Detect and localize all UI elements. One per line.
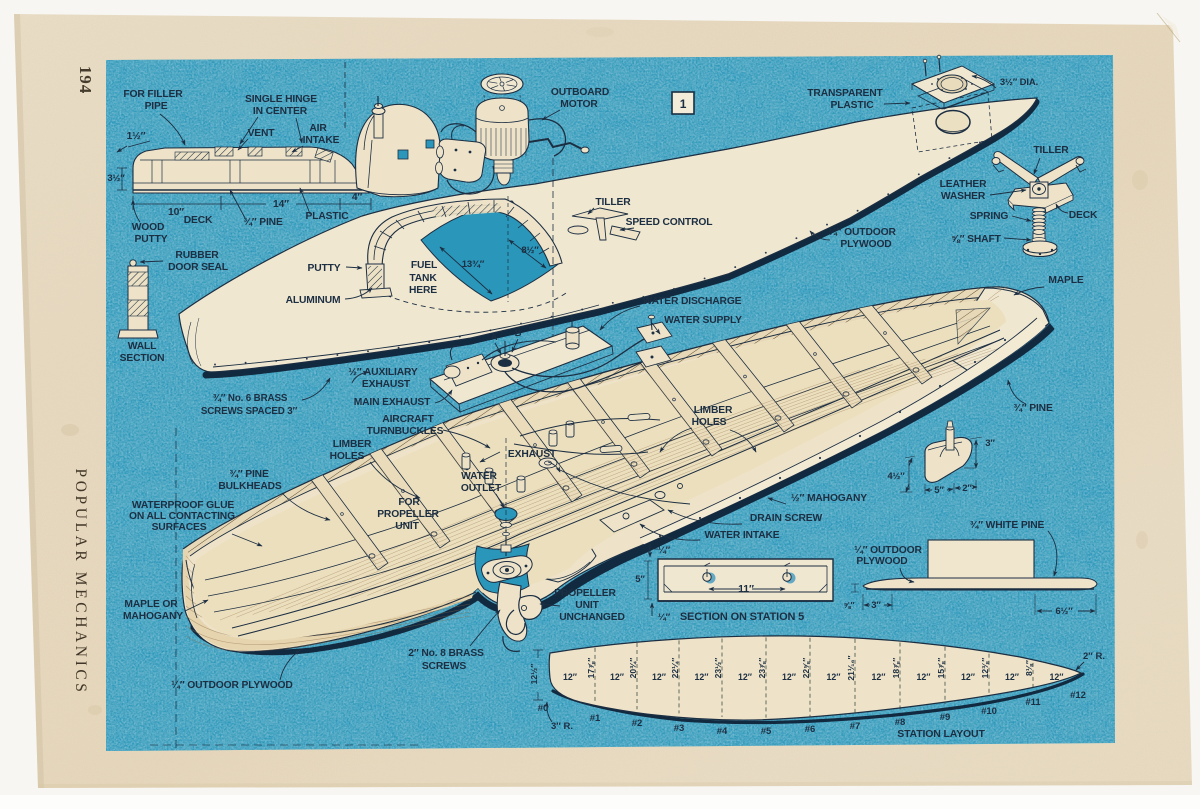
svg-text:MAHOGANY: MAHOGANY	[123, 611, 183, 622]
svg-text:13¾″: 13¾″	[462, 259, 485, 270]
svg-text:22¼″: 22¼″	[670, 658, 680, 679]
svg-text:20¾″: 20¾″	[628, 658, 638, 679]
svg-text:#10: #10	[981, 706, 997, 717]
svg-text:194: 194	[76, 66, 95, 95]
svg-text:TANK: TANK	[409, 273, 437, 284]
svg-text:¼″: ¼″	[658, 612, 671, 623]
svg-text:HOLES: HOLES	[330, 451, 365, 462]
svg-text:MAIN EXHAUST: MAIN EXHAUST	[354, 397, 431, 408]
svg-text:#7: #7	[850, 721, 861, 732]
svg-text:OUTBOARD: OUTBOARD	[551, 87, 609, 98]
svg-text:SCREWS SPACED 3″: SCREWS SPACED 3″	[201, 406, 298, 417]
svg-text:TILLER: TILLER	[595, 197, 631, 208]
svg-text:TRANSPARENT: TRANSPARENT	[807, 88, 883, 99]
svg-text:#11: #11	[1025, 697, 1041, 708]
svg-text:TILLER: TILLER	[1033, 145, 1069, 156]
svg-text:11″: 11″	[738, 583, 754, 595]
svg-text:¾″ WHITE PINE: ¾″ WHITE PINE	[970, 520, 1045, 531]
svg-text:IN CENTER: IN CENTER	[253, 106, 308, 117]
svg-text:10″: 10″	[168, 207, 184, 218]
svg-text:FOR: FOR	[398, 497, 420, 508]
svg-text:12″: 12″	[610, 672, 625, 682]
svg-text:12″: 12″	[652, 672, 667, 682]
svg-text:6½″: 6½″	[1055, 606, 1073, 617]
svg-text:1: 1	[680, 97, 687, 111]
svg-text:MAPLE OR: MAPLE OR	[124, 599, 178, 610]
svg-text:⅝″ SHAFT: ⅝″ SHAFT	[951, 234, 1001, 245]
svg-text:PROPELLER: PROPELLER	[377, 509, 439, 520]
svg-text:#5: #5	[761, 726, 772, 737]
svg-text:SCREWS: SCREWS	[422, 661, 467, 672]
svg-text:ALUMINUM: ALUMINUM	[286, 295, 341, 306]
svg-text:EXHAUST: EXHAUST	[362, 379, 411, 390]
svg-text:PROPELLER: PROPELLER	[554, 588, 616, 599]
svg-text:STATION LAYOUT: STATION LAYOUT	[897, 728, 985, 740]
svg-text:¼″ OUTDOOR: ¼″ OUTDOOR	[854, 545, 922, 556]
svg-text:BULKHEADS: BULKHEADS	[218, 481, 282, 492]
svg-text:B: B	[515, 328, 522, 339]
svg-text:UNIT: UNIT	[395, 521, 419, 532]
svg-text:WASHER: WASHER	[941, 191, 986, 202]
svg-text:12″: 12″	[872, 672, 887, 682]
svg-text:DOOR SEAL: DOOR SEAL	[168, 262, 228, 273]
svg-text:¾″ PINE: ¾″ PINE	[1013, 403, 1053, 414]
svg-text:#4: #4	[717, 726, 728, 737]
svg-text:PLASTIC: PLASTIC	[831, 100, 875, 111]
svg-text:2″ No. 8 BRASS: 2″ No. 8 BRASS	[408, 648, 484, 659]
svg-text:AIRCRAFT: AIRCRAFT	[382, 414, 434, 425]
svg-text:12″: 12″	[961, 672, 976, 682]
svg-text:22⅝″: 22⅝″	[801, 658, 811, 679]
svg-text:UNIT: UNIT	[575, 600, 599, 611]
svg-text:EXHAUST: EXHAUST	[508, 449, 557, 460]
svg-text:12″: 12″	[782, 672, 797, 682]
svg-text:3½″: 3½″	[107, 173, 125, 184]
svg-text:3″ R.: 3″ R.	[551, 721, 573, 732]
svg-text:12″: 12″	[1005, 672, 1020, 682]
svg-text:PLASTIC: PLASTIC	[306, 211, 350, 222]
svg-text:HOLES: HOLES	[692, 417, 727, 428]
svg-text:VENT: VENT	[248, 128, 276, 139]
svg-text:RUBBER: RUBBER	[175, 250, 219, 261]
svg-text:3″: 3″	[871, 600, 881, 611]
svg-text:¼″ OUTDOOR PLYWOOD: ¼″ OUTDOOR PLYWOOD	[171, 680, 292, 691]
svg-text:WATERPROOF GLUE: WATERPROOF GLUE	[132, 500, 235, 511]
svg-text:FOR FILLER: FOR FILLER	[123, 89, 183, 100]
svg-text:8⅛″: 8⅛″	[1024, 660, 1034, 676]
svg-text:SECTION: SECTION	[120, 353, 165, 364]
svg-text:SECTION ON STATION 5: SECTION ON STATION 5	[680, 611, 804, 623]
svg-text:#3: #3	[674, 723, 685, 734]
svg-text:¾″ No. 6 BRASS: ¾″ No. 6 BRASS	[213, 393, 288, 404]
svg-text:PUTTY: PUTTY	[134, 234, 167, 245]
svg-text:1½″: 1½″	[127, 131, 146, 142]
svg-text:WATER: WATER	[461, 471, 497, 482]
svg-text:8½″: 8½″	[521, 245, 539, 256]
svg-text:14″: 14″	[273, 199, 289, 210]
svg-text:PLYWOOD: PLYWOOD	[856, 556, 907, 567]
svg-text:OUTLET: OUTLET	[461, 483, 502, 494]
svg-text:MAPLE: MAPLE	[1048, 275, 1084, 286]
svg-text:LIMBER: LIMBER	[694, 405, 733, 416]
svg-text:DECK: DECK	[184, 215, 213, 226]
svg-text:#6: #6	[805, 724, 816, 735]
svg-text:LEATHER: LEATHER	[940, 179, 988, 190]
svg-text:¾″ PINE: ¾″ PINE	[229, 469, 269, 480]
svg-text:SPEED CONTROL: SPEED CONTROL	[626, 217, 713, 228]
svg-text:12″: 12″	[1050, 672, 1065, 682]
svg-text:SURFACES: SURFACES	[152, 522, 207, 533]
svg-text:2″: 2″	[962, 483, 972, 494]
svg-text:⅝″: ⅝″	[844, 600, 855, 610]
svg-text:¼″: ¼″	[658, 545, 671, 556]
svg-text:POPULAR MECHANICS: POPULAR MECHANICS	[72, 469, 89, 696]
svg-text:SPRING: SPRING	[970, 211, 1009, 222]
svg-text:12″: 12″	[563, 672, 578, 682]
svg-text:¼″ OUTDOOR: ¼″ OUTDOOR	[828, 227, 896, 238]
svg-text:SINGLE HINGE: SINGLE HINGE	[245, 94, 317, 105]
svg-text:21¹⁄₁₆″: 21¹⁄₁₆″	[846, 655, 856, 680]
svg-text:UNCHANGED: UNCHANGED	[559, 612, 625, 623]
svg-text:A: A	[491, 332, 498, 343]
svg-text:WOOD: WOOD	[132, 222, 165, 233]
svg-text:½″ MAHOGANY: ½″ MAHOGANY	[791, 493, 867, 504]
svg-text:17⅞″: 17⅞″	[586, 658, 596, 679]
svg-text:4″: 4″	[352, 192, 363, 203]
svg-text:WALL: WALL	[128, 341, 157, 352]
svg-text:12⅜″: 12⅜″	[980, 658, 990, 679]
svg-text:PLYWOOD: PLYWOOD	[840, 239, 891, 250]
svg-text:#8: #8	[895, 717, 906, 728]
svg-text:AIR: AIR	[309, 123, 327, 134]
svg-text:15⅞″: 15⅞″	[936, 658, 946, 679]
svg-text:12½″: 12½″	[529, 664, 539, 685]
svg-text:FUEL: FUEL	[411, 260, 437, 271]
svg-text:PUTTY: PUTTY	[307, 263, 340, 274]
svg-text:PIPE: PIPE	[145, 101, 168, 112]
svg-text:3″: 3″	[985, 438, 995, 449]
svg-text:23½″: 23½″	[713, 658, 723, 679]
svg-text:12″: 12″	[738, 672, 753, 682]
svg-text:TURNBUCKLES: TURNBUCKLES	[367, 426, 444, 437]
svg-text:HERE: HERE	[409, 285, 437, 296]
svg-text:WATER DISCHARGE: WATER DISCHARGE	[643, 296, 742, 307]
svg-text:ON ALL CONTACTING: ON ALL CONTACTING	[129, 511, 235, 522]
svg-text:MOTOR: MOTOR	[560, 99, 598, 110]
svg-text:INTAKE: INTAKE	[303, 135, 340, 146]
svg-text:23⅞″: 23⅞″	[757, 658, 767, 679]
svg-text:#2: #2	[632, 718, 643, 729]
svg-text:12″: 12″	[827, 672, 842, 682]
svg-text:LIMBER: LIMBER	[333, 439, 372, 450]
svg-text:¾″ PINE: ¾″ PINE	[243, 217, 283, 228]
svg-text:4½″: 4½″	[887, 471, 905, 482]
svg-text:5″: 5″	[635, 574, 645, 585]
svg-text:DECK: DECK	[1069, 210, 1098, 221]
svg-text:DRAIN SCREW: DRAIN SCREW	[750, 513, 823, 524]
svg-text:#9: #9	[940, 712, 951, 723]
svg-text:½″ AUXILIARY: ½″ AUXILIARY	[348, 367, 418, 378]
svg-text:12″: 12″	[695, 672, 710, 682]
svg-text:#1: #1	[590, 713, 601, 724]
svg-text:18⅞″: 18⅞″	[891, 658, 901, 679]
svg-text:WATER SUPPLY: WATER SUPPLY	[664, 315, 742, 326]
svg-text:12″: 12″	[917, 672, 932, 682]
svg-text:3½″ DIA.: 3½″ DIA.	[1000, 77, 1038, 88]
svg-text:#12: #12	[1070, 690, 1086, 701]
svg-text:5″: 5″	[934, 485, 944, 496]
svg-text:2″ R.: 2″ R.	[1083, 651, 1105, 662]
svg-text:WATER INTAKE: WATER INTAKE	[704, 530, 779, 541]
